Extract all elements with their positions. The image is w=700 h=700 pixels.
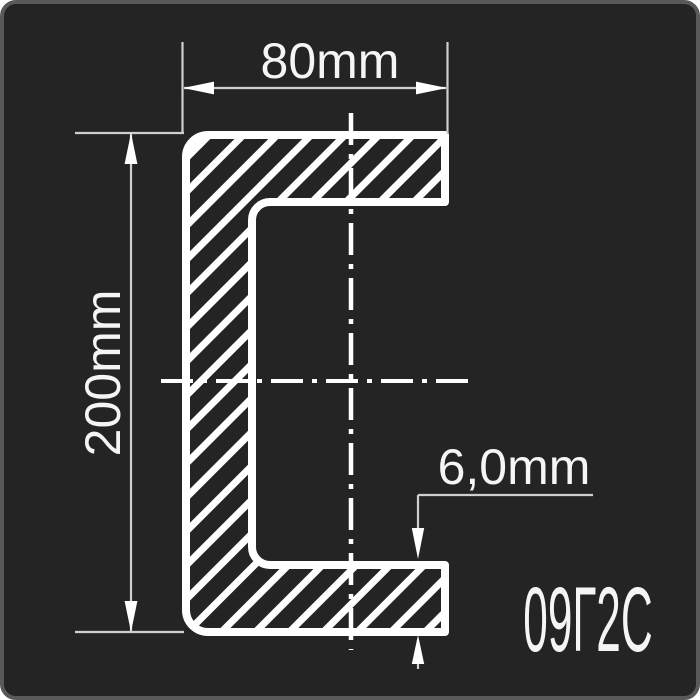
dimension-arrow-left-icon	[183, 82, 214, 95]
dimension-arrow-down-icon	[125, 601, 138, 632]
channel-profile-shape	[186, 135, 445, 632]
thickness-arrow-up-icon	[412, 635, 424, 664]
dimension-arrow-right-icon	[416, 82, 447, 95]
steel-grade-label: 09Г2С	[523, 569, 652, 671]
channel-drawing: 80mm 200mm 6,0mm 09Г2С	[4, 4, 696, 696]
dimension-arrow-up-icon	[125, 133, 138, 164]
drawing-panel: 80mm 200mm 6,0mm 09Г2С	[0, 0, 700, 700]
width-dimension: 80mm	[183, 33, 448, 134]
thickness-arrow-down-icon	[412, 528, 424, 559]
width-dimension-label: 80mm	[261, 33, 400, 89]
thickness-dimension-label: 6,0mm	[438, 439, 591, 495]
height-dimension-label: 200mm	[75, 290, 131, 457]
